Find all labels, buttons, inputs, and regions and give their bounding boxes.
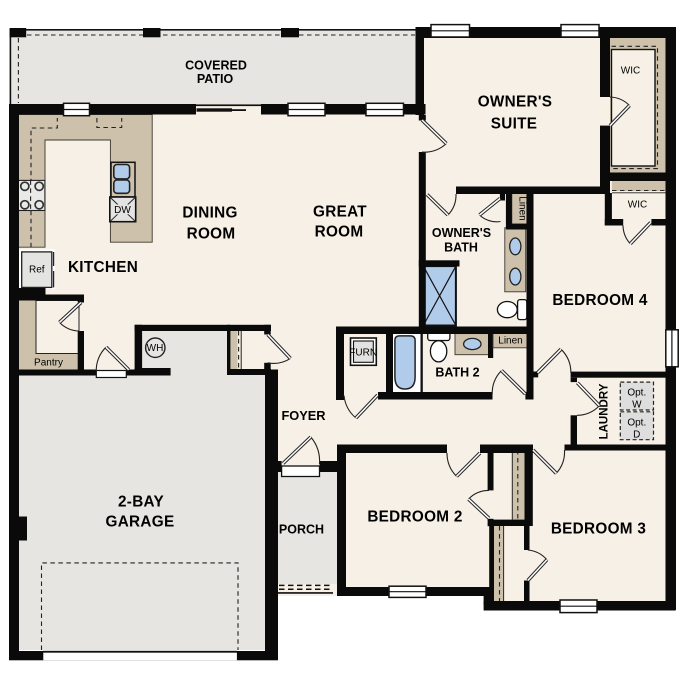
- svg-text:Opt.: Opt.: [627, 418, 646, 429]
- svg-text:FURN: FURN: [349, 348, 377, 359]
- svg-text:OWNER'S: OWNER'S: [478, 94, 553, 111]
- svg-text:BEDROOM 4: BEDROOM 4: [552, 292, 648, 309]
- svg-text:WH: WH: [147, 343, 164, 354]
- svg-text:Opt.: Opt.: [627, 388, 646, 399]
- svg-text:BEDROOM 3: BEDROOM 3: [551, 521, 646, 538]
- svg-text:BEDROOM 2: BEDROOM 2: [367, 509, 462, 526]
- svg-text:PORCH: PORCH: [279, 523, 324, 537]
- svg-text:WIC: WIC: [628, 200, 647, 211]
- svg-text:Linen: Linen: [498, 336, 522, 347]
- svg-text:SUITE: SUITE: [491, 116, 538, 133]
- svg-text:ROOM: ROOM: [187, 226, 236, 243]
- svg-text:GREAT: GREAT: [313, 204, 367, 221]
- svg-text:BATH: BATH: [444, 241, 478, 255]
- svg-text:DINING: DINING: [182, 205, 237, 222]
- svg-text:COVERED: COVERED: [185, 59, 247, 73]
- svg-text:WIC: WIC: [621, 66, 640, 77]
- svg-text:BATH 2: BATH 2: [435, 366, 479, 380]
- svg-text:2-BAY: 2-BAY: [118, 494, 164, 511]
- svg-text:FOYER: FOYER: [281, 408, 325, 423]
- svg-text:ROOM: ROOM: [315, 224, 364, 241]
- svg-text:D: D: [633, 430, 640, 441]
- svg-text:PATIO: PATIO: [197, 72, 234, 86]
- svg-text:GARAGE: GARAGE: [106, 514, 175, 531]
- svg-text:Linen: Linen: [516, 196, 527, 220]
- svg-text:OWNER'S: OWNER'S: [432, 226, 491, 240]
- svg-text:LAUNDRY: LAUNDRY: [599, 383, 611, 439]
- svg-text:Ref: Ref: [29, 265, 45, 276]
- svg-text:KITCHEN: KITCHEN: [68, 259, 138, 276]
- svg-text:W: W: [632, 400, 642, 411]
- svg-text:Pantry: Pantry: [34, 358, 63, 369]
- svg-text:DW: DW: [114, 205, 131, 216]
